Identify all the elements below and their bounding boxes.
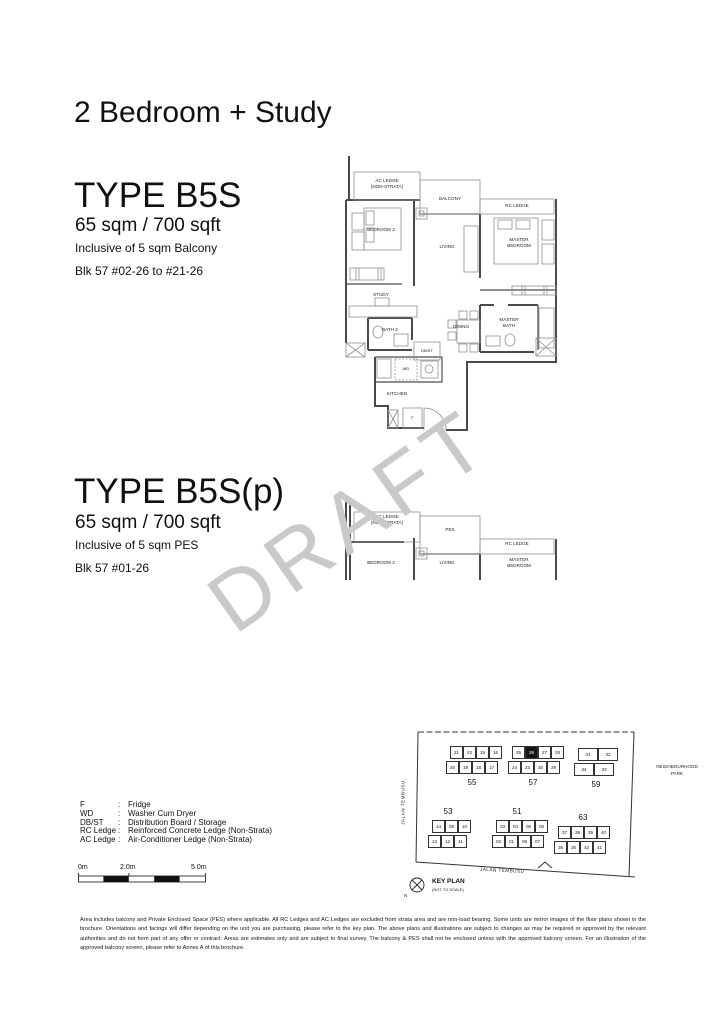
legend-cell: Air-Conditioner Ledge (Non-Strata) <box>128 836 380 845</box>
keyplan-unit-23: 23 <box>521 761 534 774</box>
keyplan-unit-40: 40 <box>597 826 610 839</box>
keyplan-unit-16: 16 <box>489 746 502 759</box>
keyplan-unit-31: 31 <box>578 748 598 761</box>
keyplan-blocknum-51: 51 <box>505 807 529 816</box>
keyplan-unit-29: 29 <box>547 761 560 774</box>
keyplan-block-59: 31323433 <box>578 748 618 778</box>
keyplan-unit-39: 39 <box>584 826 597 839</box>
plan1-label-bedroom2: BEDROOM 2 <box>350 227 412 233</box>
plan1-label-bath2: BATH 2 <box>370 327 410 333</box>
keyplan-unit-35: 35 <box>567 841 580 854</box>
plan1-label-dbst: DB/ST <box>414 348 440 353</box>
legend-cell: : <box>118 836 128 845</box>
plan2-label-master-bedroom: MASTER BEDROOM <box>488 557 550 568</box>
keyplan-unit-37: 37 <box>558 826 571 839</box>
keyplan-blocknum-59: 59 <box>584 780 608 789</box>
keyplan-subtitle: (NOT TO SCALE) <box>432 887 464 892</box>
keyplan-unit-12: 12 <box>441 835 454 848</box>
type-b5s-area: 65 sqm / 700 sqft <box>75 215 221 237</box>
keyplan-unit-22: 22 <box>463 746 476 759</box>
type-b5sp-area: 65 sqm / 700 sqft <box>75 512 221 534</box>
keyplan-unit-05: 05 <box>522 820 535 833</box>
keyplan-unit-32: 32 <box>598 748 618 761</box>
plan2-label-rc-ledge: RC LEDGE <box>480 541 554 547</box>
keyplan-unit-07: 07 <box>531 835 544 848</box>
keyplan-block-53: 140910131211 <box>432 820 471 850</box>
keyplan-unit-41: 41 <box>593 841 606 854</box>
legend-row: F:Fridge <box>80 801 380 810</box>
type-b5s-name: TYPE B5S <box>74 176 241 216</box>
road-label-left: JALAN TEMBUSU <box>401 768 406 838</box>
plan1-label-dining: DINING <box>444 324 478 330</box>
brochure-page: 2 Bedroom + Study TYPE B5S 65 sqm / 700 … <box>0 0 724 1024</box>
scale-bar-graphic <box>78 864 218 890</box>
keyplan-unit-15: 15 <box>476 746 489 759</box>
plan1-label-study: STUDY <box>356 292 406 298</box>
page-title: 2 Bedroom + Study <box>74 96 332 130</box>
plan1-label-kitchen: KITCHEN <box>372 391 422 397</box>
keyplan-unit-13: 13 <box>428 835 441 848</box>
plan2-label-living: LIVING <box>422 560 472 566</box>
plan2-label-pes: PES <box>420 527 480 533</box>
type-b5s-blocks: Blk 57 #02-26 to #21-26 <box>75 264 203 278</box>
keyplan-unit-36: 36 <box>554 841 567 854</box>
keyplan-unit-34: 34 <box>574 763 594 776</box>
keyplan-blocknum-57: 57 <box>521 778 545 787</box>
keyplan-unit-26: 26 <box>525 746 538 759</box>
keyplan-unit-25: 25 <box>512 746 525 759</box>
keyplan-unit-03: 03 <box>496 820 509 833</box>
keyplan-title: KEY PLAN <box>432 878 465 885</box>
keyplan-unit-01: 01 <box>505 835 518 848</box>
disclaimer-text: Area includes balcony and Private Enclos… <box>80 916 646 953</box>
keyplan-unit-20: 20 <box>446 761 459 774</box>
keyplan-unit-24: 24 <box>508 761 521 774</box>
plan1-label-ac-ledge: AC LEDGE (NON-STRATA) <box>354 178 420 189</box>
keyplan-unit-28: 28 <box>551 746 564 759</box>
legend: F:FridgeWD:Washer Cum DryerDB/ST:Distrib… <box>80 801 380 845</box>
keyplan-unit-04: 04 <box>509 820 522 833</box>
keyplan-blocknum-55: 55 <box>460 778 484 787</box>
type-b5sp-inclusive: Inclusive of 5 sqm PES <box>75 538 198 552</box>
keyplan-unit-11: 11 <box>454 835 467 848</box>
type-b5sp-blocks: Blk 57 #01-26 <box>75 561 149 575</box>
park-label: NEIGHBOURHOOD PARK <box>638 764 716 778</box>
keyplan-unit-10: 10 <box>458 820 471 833</box>
keyplan-blocknum-53: 53 <box>436 807 460 816</box>
keyplan-unit-19: 19 <box>459 761 472 774</box>
plan1-label-balcony: BALCONY <box>420 196 480 202</box>
legend-cell: AC Ledge <box>80 836 118 845</box>
keyplan-unit-33: 33 <box>594 763 614 776</box>
keyplan-block-63: 3738394036354241 <box>558 826 610 856</box>
plan1-label-wd: WD <box>396 366 416 371</box>
keyplan-unit-14: 14 <box>432 820 445 833</box>
keyplan-unit-18: 18 <box>472 761 485 774</box>
type-b5s-inclusive: Inclusive of 5 sqm Balcony <box>75 241 217 255</box>
plan1-label-master-bath: MASTER BATH <box>481 317 537 328</box>
keyplan-unit-17: 17 <box>485 761 498 774</box>
legend-row: AC Ledge:Air-Conditioner Ledge (Non-Stra… <box>80 836 380 845</box>
keyplan-blocknum-63: 63 <box>571 813 595 822</box>
keyplan-unit-09: 09 <box>445 820 458 833</box>
keyplan-unit-08: 08 <box>518 835 531 848</box>
type-b5sp-name: TYPE B5S(p) <box>74 472 284 512</box>
scale-bar: 0m 2.0m 5.0m <box>78 864 218 890</box>
plan1-label-living: LIVING <box>422 244 472 250</box>
keyplan-unit-38: 38 <box>571 826 584 839</box>
keyplan-block-55: 2122151620191817 <box>450 746 502 776</box>
north-letter: N <box>404 893 408 898</box>
plan1-label-rc-ledge: RC LEDGE <box>480 203 554 209</box>
keyplan-unit-02: 02 <box>492 835 505 848</box>
legend-row: WD:Washer Cum Dryer <box>80 810 380 819</box>
keyplan-unit-06: 06 <box>535 820 548 833</box>
keyplan-unit-21: 21 <box>450 746 463 759</box>
keyplan-unit-42: 42 <box>580 841 593 854</box>
keyplan-block-57: 2526272824233029 <box>512 746 564 776</box>
plan1-label-master-bedroom: MASTER BEDROOM <box>488 237 550 248</box>
keyplan: 2122151620191817 2526272824233029 313234… <box>392 724 722 902</box>
keyplan-unit-30: 30 <box>534 761 547 774</box>
keyplan-unit-27: 27 <box>538 746 551 759</box>
keyplan-block-51: 0304050602010807 <box>496 820 548 850</box>
